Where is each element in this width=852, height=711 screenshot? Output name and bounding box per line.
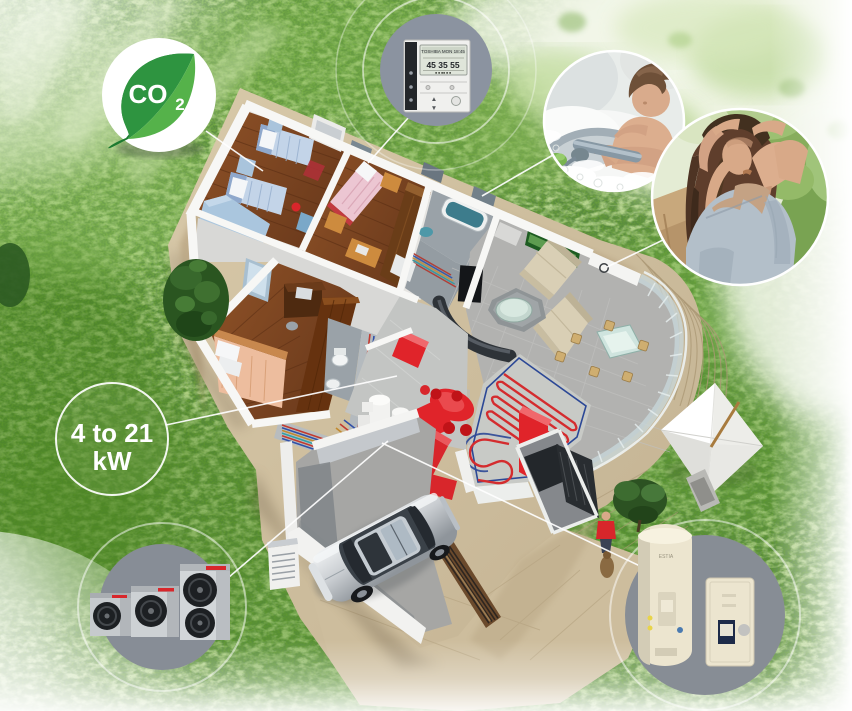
svg-text:4 to 21: 4 to 21 — [71, 418, 153, 448]
svg-text:2: 2 — [175, 95, 184, 114]
svg-text:▼: ▼ — [431, 105, 437, 112]
svg-text:kW: kW — [93, 446, 132, 476]
svg-text:▲: ▲ — [431, 96, 437, 103]
svg-text:45 35 55: 45 35 55 — [426, 60, 459, 70]
svg-text:TOSHIBA MON 18:45: TOSHIBA MON 18:45 — [421, 49, 465, 54]
svg-text:ESTIA: ESTIA — [659, 554, 674, 560]
svg-text:■ ■ ■■ ■ ■: ■ ■ ■■ ■ ■ — [435, 71, 451, 75]
svg-text:CO: CO — [129, 79, 168, 109]
